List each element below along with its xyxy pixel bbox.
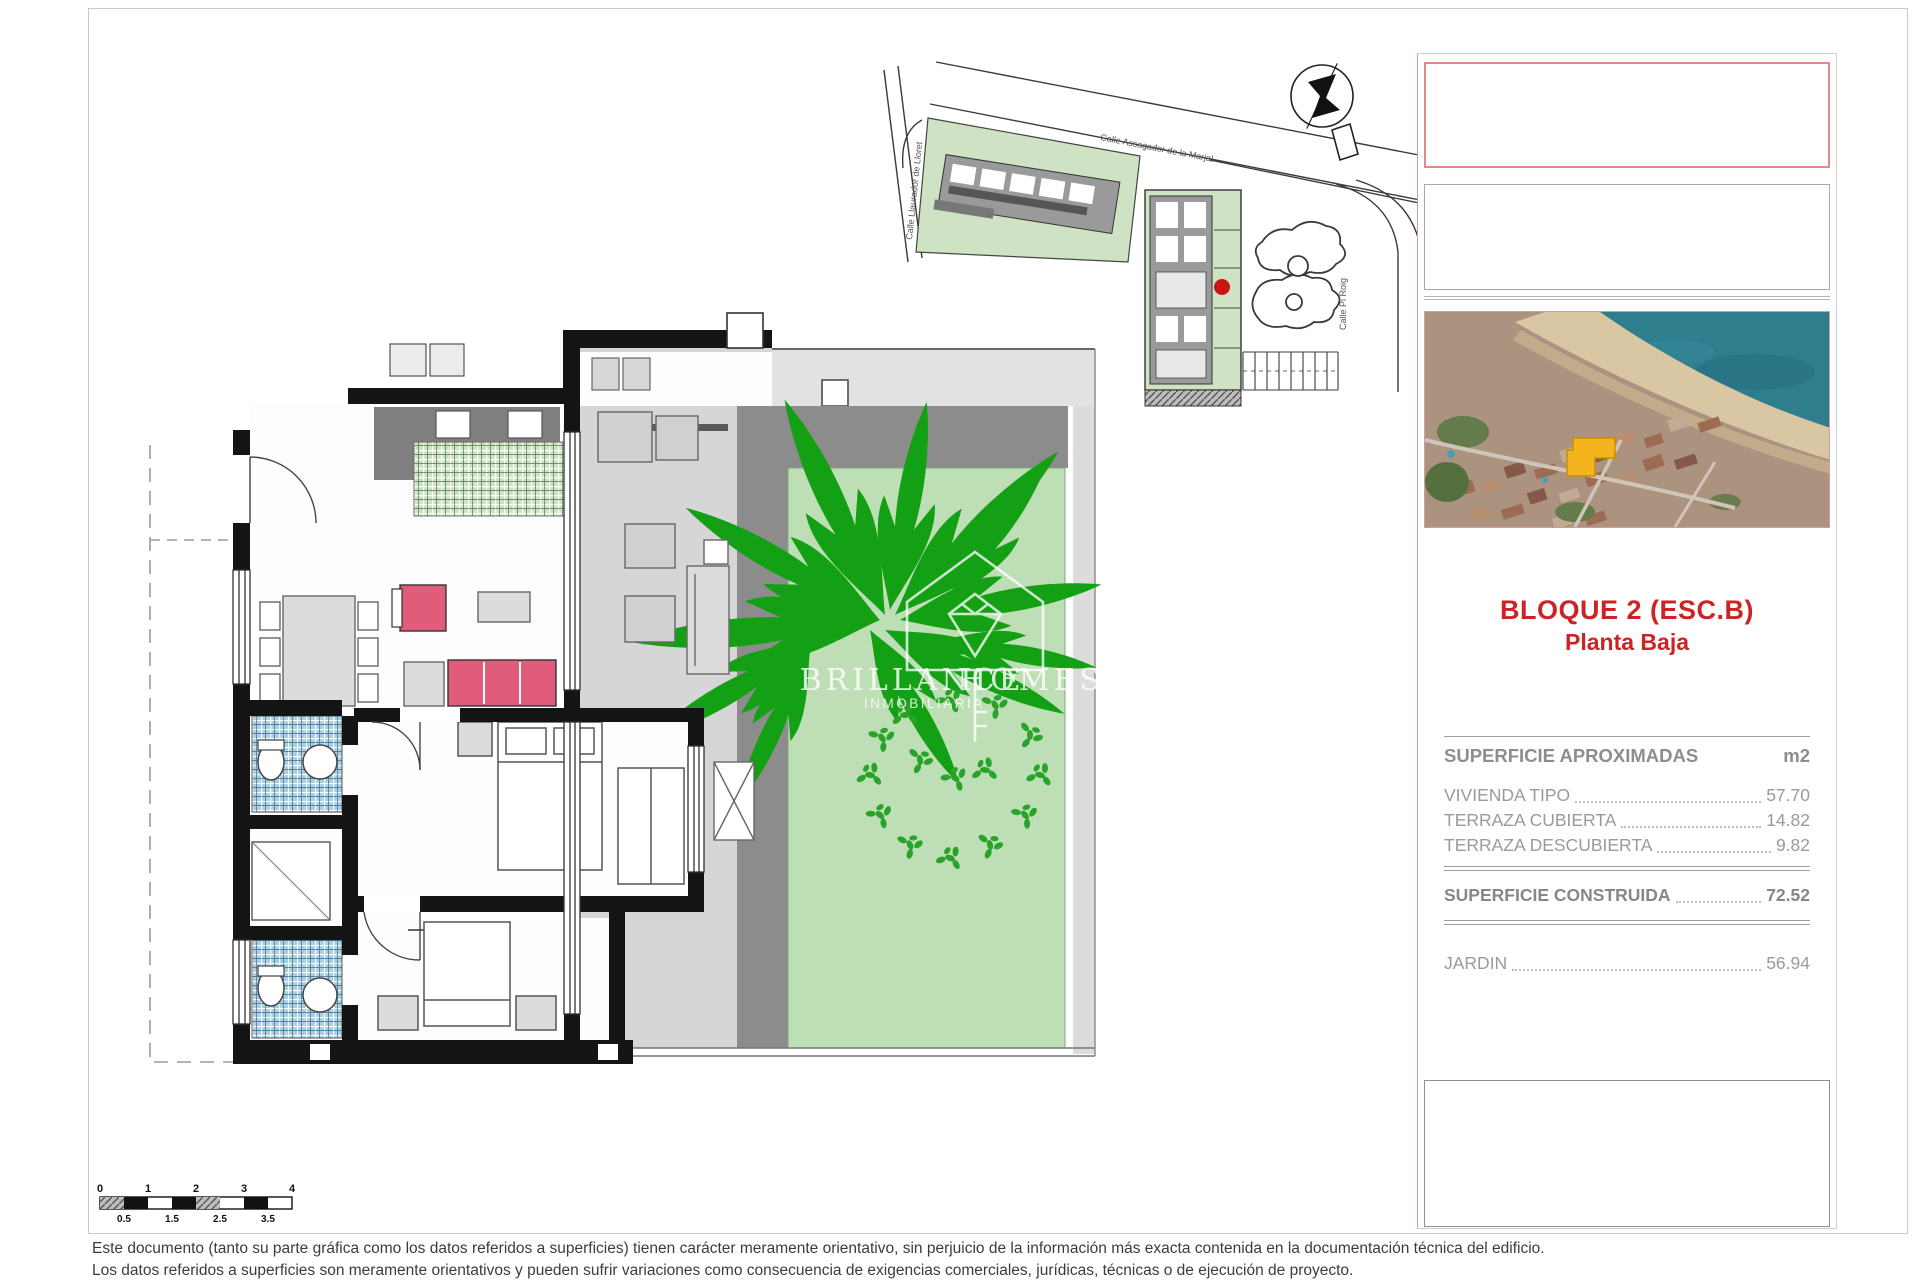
table-row: TERRAZA DESCUBIERTA 9.82 bbox=[1444, 833, 1810, 858]
svg-text:0: 0 bbox=[97, 1183, 103, 1195]
terrace-band-top bbox=[737, 406, 1068, 468]
dining-set bbox=[260, 596, 378, 706]
title-block-empty-box-2 bbox=[1424, 184, 1830, 290]
title-block-empty-box-3 bbox=[1424, 1080, 1830, 1227]
aerial-photo bbox=[1424, 311, 1830, 528]
site-pool bbox=[1252, 222, 1345, 328]
terrace-pillar bbox=[822, 380, 848, 406]
sheet-title-block: BLOQUE 2 (ESC.B) bbox=[1418, 594, 1836, 628]
row-label: TERRAZA DESCUBIERTA bbox=[1444, 833, 1652, 858]
svg-text:3.5: 3.5 bbox=[261, 1214, 275, 1225]
svg-text:INMOBILIARIA: INMOBILIARIA bbox=[864, 696, 985, 711]
row-value: 57.70 bbox=[1766, 783, 1810, 808]
surface-table: SUPERFICIE APROXIMADAS m2 VIVIENDA TIPO … bbox=[1444, 736, 1810, 976]
disclaimer-line-2: Los datos referidos a superficies son me… bbox=[92, 1260, 1892, 1280]
svg-text:2.5: 2.5 bbox=[213, 1214, 227, 1225]
total-value: 72.52 bbox=[1766, 883, 1810, 908]
row-label: TERRAZA CUBIERTA bbox=[1444, 808, 1616, 833]
scale-bar: 0 1 2 3 4 0.5 1.5 2.5 3.5 bbox=[97, 1183, 296, 1225]
svg-text:1.5: 1.5 bbox=[165, 1214, 179, 1225]
disclaimer: Este documento (tanto su parte gráfica c… bbox=[92, 1238, 1892, 1280]
total-label: SUPERFICIE CONSTRUIDA bbox=[1444, 883, 1671, 908]
row-value: 14.82 bbox=[1766, 808, 1810, 833]
svg-text:2: 2 bbox=[193, 1183, 199, 1195]
row-value: 9.82 bbox=[1776, 833, 1810, 858]
table-total-row: SUPERFICIE CONSTRUIDA 72.52 bbox=[1444, 883, 1810, 908]
neighbour-terrace-top bbox=[772, 348, 1095, 406]
bathroom-1 bbox=[252, 716, 342, 812]
title-block-panel: BLOQUE 2 (ESC.B) Planta Baja SUPERFICIE … bbox=[1417, 53, 1837, 1229]
svg-text:HOMES: HOMES bbox=[960, 663, 1104, 698]
sheet-title: BLOQUE 2 (ESC.B) Planta Baja bbox=[1418, 594, 1836, 657]
site-block-b bbox=[1145, 190, 1241, 406]
svg-text:3: 3 bbox=[241, 1183, 247, 1195]
unit-location-dot bbox=[1214, 279, 1230, 295]
table-garden-row: JARDIN 56.94 bbox=[1444, 951, 1810, 976]
apartment-floor-plan: BRILLANCE HOMES INMOBILIARIA bbox=[150, 313, 1106, 1064]
site-parking bbox=[1243, 352, 1338, 390]
surface-table-unit: m2 bbox=[1783, 743, 1810, 769]
garden-value: 56.94 bbox=[1766, 951, 1810, 976]
bathroom-2 bbox=[252, 940, 342, 1038]
table-row: VIVIENDA TIPO 57.70 bbox=[1444, 783, 1810, 808]
divider-double-line bbox=[1424, 296, 1830, 300]
sheet-title-floor: Planta Baja bbox=[1418, 628, 1836, 657]
surface-table-header: SUPERFICIE APROXIMADAS bbox=[1444, 743, 1698, 769]
title-block-empty-box-1 bbox=[1424, 62, 1830, 168]
svg-text:4: 4 bbox=[289, 1183, 296, 1195]
svg-text:1: 1 bbox=[145, 1183, 151, 1195]
street-label-right: Calle Pi Roig bbox=[1338, 278, 1348, 330]
disclaimer-line-1: Este documento (tanto su parte gráfica c… bbox=[92, 1238, 1892, 1260]
neighbour-terrace-right bbox=[1073, 406, 1095, 1054]
north-compass-icon bbox=[1291, 63, 1358, 160]
row-label: VIVIENDA TIPO bbox=[1444, 783, 1570, 808]
svg-text:0.5: 0.5 bbox=[117, 1214, 131, 1225]
plan-sheet: BRILLANCE HOMES INMOBILIARIA bbox=[0, 0, 1920, 1280]
table-row: TERRAZA CUBIERTA 14.82 bbox=[1444, 808, 1810, 833]
garden-label: JARDIN bbox=[1444, 951, 1507, 976]
